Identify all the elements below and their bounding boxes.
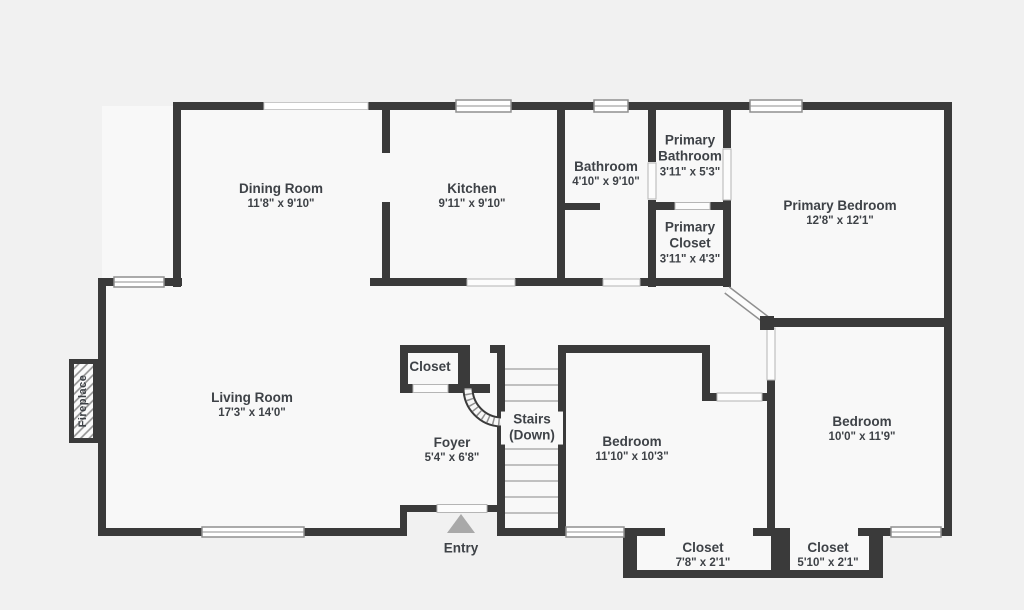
window-bedroom-left <box>566 527 624 537</box>
floor-plan: Dining Room 11'8" x 9'10" Kitchen 9'11" … <box>0 0 1024 610</box>
window-living-bottom <box>202 527 304 537</box>
window-primary-bedroom <box>750 100 802 112</box>
window-kitchen <box>456 100 511 112</box>
floor-area <box>102 106 948 574</box>
window-living-left <box>114 277 164 287</box>
entry-threshold <box>437 505 487 513</box>
window-bedroom-right <box>891 527 941 537</box>
door-primary-bedroom <box>723 149 731 200</box>
door-primary-closet <box>675 203 710 210</box>
door-foyer-closet <box>413 385 448 393</box>
fireplace <box>69 359 98 443</box>
window-dining <box>264 103 368 110</box>
door-bedroom-left <box>717 393 762 401</box>
window-bathroom <box>594 100 628 112</box>
opening-kitchen-hall <box>467 279 515 286</box>
entry-arrow-icon <box>447 514 475 533</box>
door-bathroom <box>603 279 640 286</box>
door-bedroom-right <box>767 328 775 380</box>
door-primary-bathroom <box>648 163 656 199</box>
floor-plan-drawing <box>0 0 1024 610</box>
